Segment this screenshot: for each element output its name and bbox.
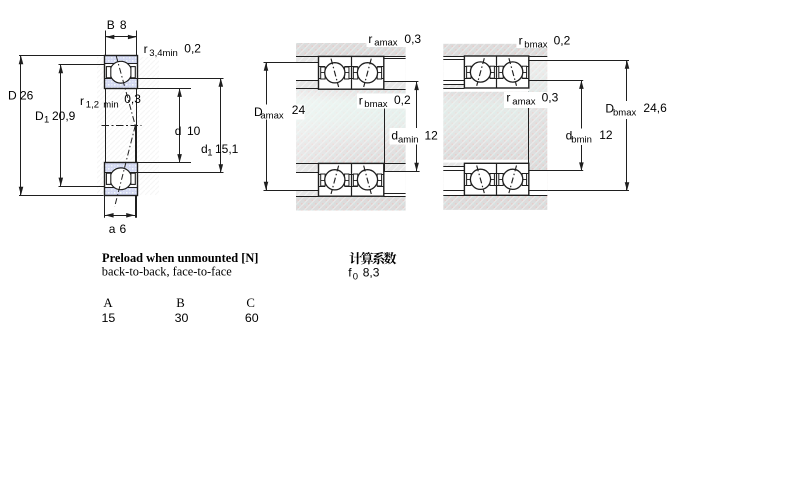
svg-text:0,2: 0,2 [184, 42, 201, 56]
svg-text:C: C [246, 296, 255, 310]
svg-text:r: r [359, 93, 363, 107]
svg-text:26: 26 [20, 89, 34, 103]
svg-text:1: 1 [44, 115, 49, 126]
svg-text:12: 12 [599, 128, 613, 142]
svg-text:D: D [8, 89, 17, 103]
svg-text:d: d [175, 124, 182, 138]
svg-text:30: 30 [175, 311, 189, 325]
svg-text:60: 60 [245, 311, 259, 325]
svg-text:0: 0 [353, 271, 358, 282]
svg-text:bmax: bmax [524, 39, 547, 50]
svg-text:8: 8 [120, 18, 127, 32]
svg-text:a: a [109, 222, 116, 236]
svg-text:15: 15 [102, 311, 116, 325]
svg-text:0,2: 0,2 [394, 93, 411, 107]
svg-text:B: B [176, 296, 185, 310]
svg-text:1,2: 1,2 [86, 100, 99, 111]
svg-text:r: r [506, 91, 510, 105]
svg-text:24: 24 [292, 103, 306, 117]
svg-text:min: min [103, 100, 118, 111]
svg-text:amax: amax [374, 38, 397, 49]
svg-text:bmin: bmin [571, 135, 592, 146]
svg-text:0,3: 0,3 [542, 91, 559, 105]
svg-text:B: B [107, 18, 115, 32]
svg-text:1: 1 [207, 148, 212, 159]
svg-text:3,4min: 3,4min [149, 48, 178, 59]
svg-text:back-to-back, face-to-face: back-to-back, face-to-face [102, 264, 233, 278]
svg-text:r: r [144, 42, 148, 56]
svg-text:6: 6 [120, 222, 127, 236]
svg-text:24,6: 24,6 [643, 101, 667, 115]
svg-text:D: D [35, 109, 44, 123]
svg-text:0,2: 0,2 [554, 34, 571, 48]
svg-text:r: r [368, 32, 372, 46]
svg-text:amin: amin [398, 135, 419, 146]
svg-text:bmax: bmax [613, 107, 636, 118]
svg-text:amax: amax [260, 111, 283, 122]
svg-text:r: r [80, 94, 84, 108]
svg-text:A: A [103, 296, 113, 310]
svg-text:0,3: 0,3 [404, 32, 421, 46]
svg-text:Preload when unmounted [N]: Preload when unmounted [N] [102, 251, 258, 265]
svg-text:r: r [519, 34, 523, 48]
svg-text:amax: amax [512, 96, 535, 107]
svg-text:10: 10 [187, 124, 201, 138]
svg-text:8,3: 8,3 [363, 266, 380, 280]
svg-text:20,9: 20,9 [52, 109, 76, 123]
svg-text:12: 12 [425, 128, 439, 142]
svg-text:0,3: 0,3 [124, 92, 141, 106]
svg-text:bmax: bmax [364, 99, 387, 110]
svg-text:15,1: 15,1 [215, 142, 239, 156]
